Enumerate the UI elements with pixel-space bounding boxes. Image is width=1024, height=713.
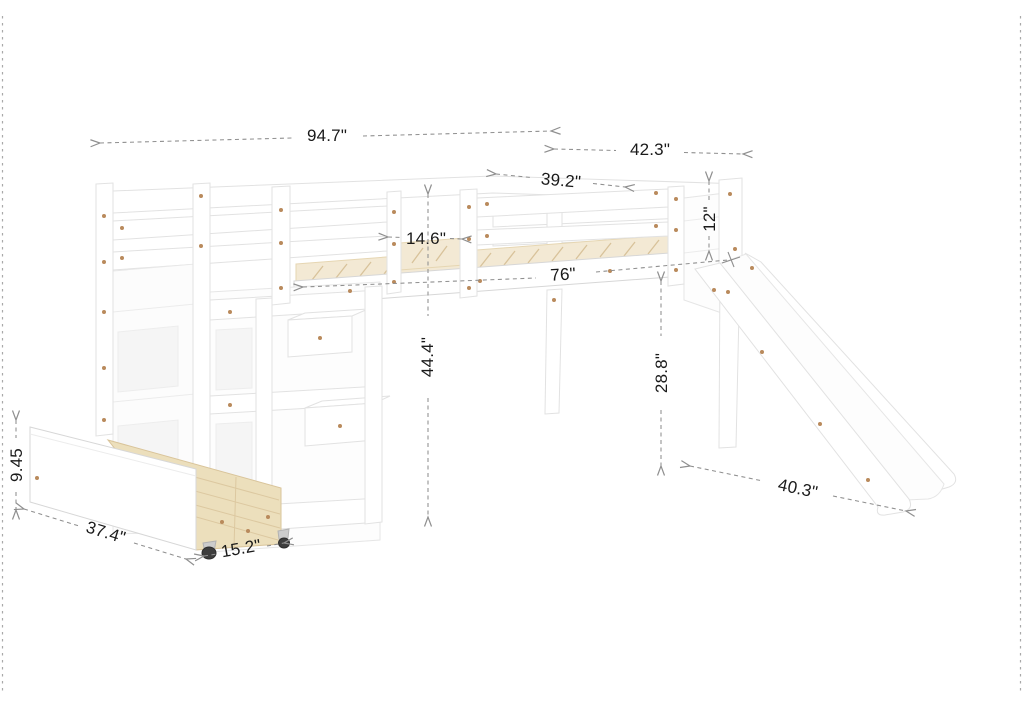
dimension-overall-length: 94.7" [100,126,551,145]
dimension-line [554,149,616,151]
dimension-label: 28.8" [652,353,671,393]
dimension-label: 39.2" [540,169,582,191]
tower-front-niche [216,328,252,390]
tower-right-post [365,286,382,524]
dimension-line [363,131,551,136]
slide-surface [719,254,944,500]
dimension-label: 42.3" [630,140,670,159]
dimension-overall-depth: 42.3" [554,140,743,159]
dimension-line [100,138,292,143]
dimension-label: 76" [550,264,577,285]
loft-bed-dimension-drawing: 94.7" 42.3" 39.2" 14.6" 12" 76" 44.4" 28… [0,0,1024,713]
dimension-line [690,466,763,481]
dimension-line [134,543,186,559]
dimension-under-bed-clearance: 28.8" [652,281,671,466]
dimension-label: 12" [700,206,719,232]
tower-left-post [96,183,113,436]
dimension-label: 44.4" [418,337,437,377]
dimension-label: 94.7" [307,126,347,145]
dimension-line [684,153,743,155]
dimension-label: 9.45 [7,448,26,482]
dimension-label: 14.6" [406,229,446,248]
drawer-caster [278,529,290,548]
dimension-drawer-height: 9.45 [7,420,26,510]
middle-leg [545,289,562,414]
tower-side-niche [118,326,178,392]
dimension-label: 40.3" [776,475,819,502]
dimension-diagram: 94.7" 42.3" 39.2" 14.6" 12" 76" 44.4" 28… [0,0,1024,713]
